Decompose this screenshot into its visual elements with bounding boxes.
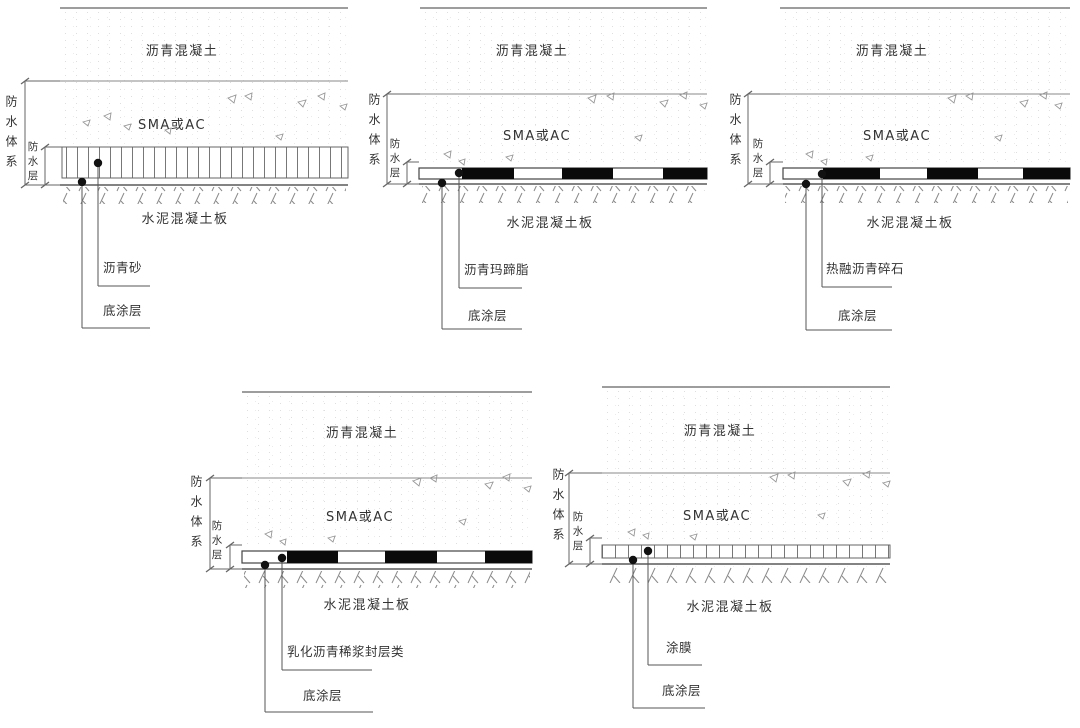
cement-slab-label: 水泥混凝土板 <box>686 596 773 615</box>
asphalt-concrete-label: 沥青混凝土 <box>496 40 569 59</box>
asphalt-concrete-label: 沥青混凝土 <box>146 40 219 59</box>
primer-callout-label: 底涂层 <box>103 300 142 319</box>
layer-boundary-lines <box>602 387 890 564</box>
section-panel-coating-film: 沥青混凝土 SMA或AC 水泥混凝土板 涂膜 底涂层 防水体系 防水层 <box>550 380 940 728</box>
slab-hatch-marks <box>785 186 1068 203</box>
waterproof-layer-label: 防水层 <box>211 520 222 564</box>
primer-callout-label: 底涂层 <box>838 305 877 324</box>
sma-ac-label: SMA或AC <box>503 125 571 144</box>
primer-callout-label: 底涂层 <box>303 685 342 704</box>
waterproof-system-label: 防水体系 <box>729 93 741 173</box>
layer-boundary-lines <box>419 8 707 184</box>
section-panel-hot-asphalt-chips: 沥青混凝土 SMA或AC 水泥混凝土板 热融沥青碎石 底涂层 防水体系 防水层 <box>720 5 1080 345</box>
slab-hatch-marks <box>244 571 530 588</box>
aggregate-triangle-icons <box>83 93 347 140</box>
aggregate-triangle-icons <box>806 92 1062 165</box>
material-callout-label: 沥青玛蹄脂 <box>464 259 529 278</box>
slab-hatch-marks <box>605 566 888 583</box>
slab-hatch-marks <box>63 187 346 204</box>
waterproof-system-label: 防水体系 <box>190 475 202 555</box>
aggregate-triangle-icons <box>628 471 890 540</box>
asphalt-concrete-label: 沥青混凝土 <box>326 422 399 441</box>
sma-ac-label: SMA或AC <box>683 505 751 524</box>
primer-callout-label: 底涂层 <box>662 680 701 699</box>
waterproof-system-label: 防水体系 <box>5 95 17 175</box>
waterproof-layer-label: 防水层 <box>27 141 38 185</box>
material-callout-label: 热融沥青碎石 <box>826 258 904 277</box>
cement-slab-label: 水泥混凝土板 <box>323 594 410 613</box>
material-callout-label: 乳化沥青稀浆封层类 <box>287 641 404 660</box>
cement-slab-label: 水泥混凝土板 <box>141 208 228 227</box>
asphalt-concrete-label: 沥青混凝土 <box>856 40 929 59</box>
material-callout-label: 涂膜 <box>666 637 692 656</box>
section-panel-asphalt-sand: 沥青混凝土 SMA或AC 水泥混凝土板 沥青砂 底涂层 防水体系 防水层 <box>0 5 352 335</box>
layer-boundary-lines <box>780 8 1070 184</box>
section-panel-asphalt-mastic: 沥青混凝土 SMA或AC 水泥混凝土板 沥青玛蹄脂 底涂层 防水体系 防水层 <box>360 5 712 345</box>
aggregate-triangle-icons <box>444 92 707 165</box>
aggregate-triangle-icons <box>265 474 531 545</box>
sma-ac-label: SMA或AC <box>863 125 931 144</box>
dimension-brackets <box>565 470 602 567</box>
asphalt-concrete-label: 沥青混凝土 <box>684 420 757 439</box>
waterproof-band-ticks <box>62 147 348 178</box>
sma-ac-label: SMA或AC <box>326 506 394 525</box>
dimension-brackets <box>744 91 783 187</box>
cement-slab-label: 水泥混凝土板 <box>866 212 953 231</box>
slab-hatch-marks <box>422 186 705 203</box>
cement-slab-label: 水泥混凝土板 <box>506 212 593 231</box>
primer-callout-label: 底涂层 <box>468 305 507 324</box>
material-callout-label: 沥青砂 <box>103 257 142 276</box>
waterproof-system-label: 防水体系 <box>552 468 564 548</box>
section-panel-slurry-seal: 沥青混凝土 SMA或AC 水泥混凝土板 乳化沥青稀浆封层类 底涂层 防水体系 防… <box>180 380 560 728</box>
waterproof-layer-label: 防水层 <box>752 138 763 182</box>
waterproof-layer-label: 防水层 <box>389 138 400 182</box>
waterproof-layer-label: 防水层 <box>572 511 583 555</box>
waterproof-system-label: 防水体系 <box>368 93 380 173</box>
sma-ac-label: SMA或AC <box>138 114 206 133</box>
